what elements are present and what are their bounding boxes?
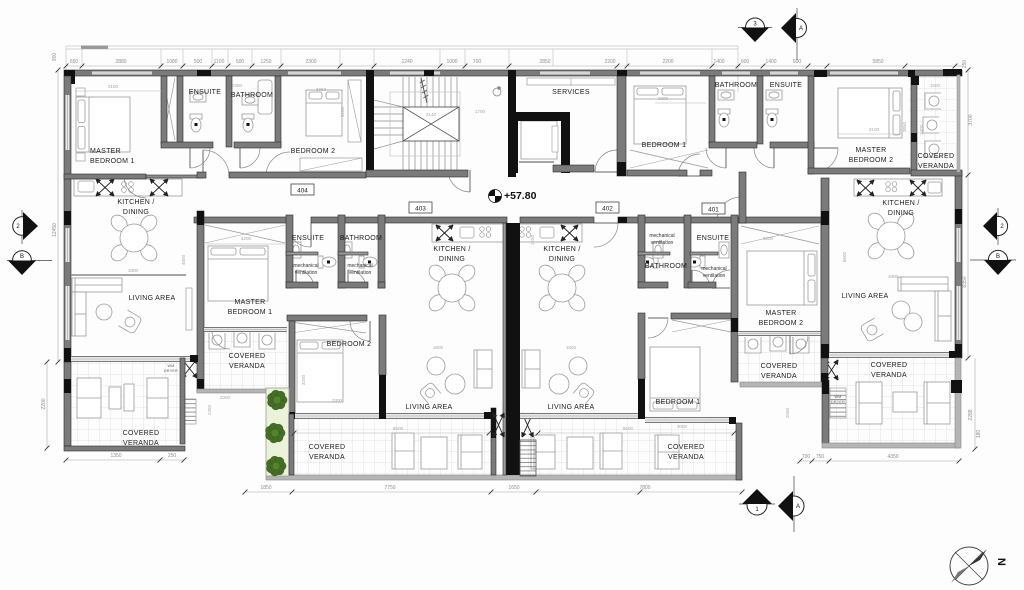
svg-text:2450: 2450 <box>207 404 212 415</box>
svg-text:MASTER: MASTER <box>766 310 797 317</box>
svg-text:3200: 3200 <box>241 236 252 241</box>
svg-text:SERVICES: SERVICES <box>552 89 590 96</box>
svg-text:3100: 3100 <box>108 84 119 89</box>
svg-text:ENSUITE: ENSUITE <box>697 235 729 242</box>
svg-text:DINING: DINING <box>123 209 149 216</box>
svg-text:2200: 2200 <box>604 59 615 65</box>
svg-text:1800: 1800 <box>433 345 444 350</box>
svg-text:7800: 7800 <box>639 485 650 491</box>
svg-text:VERANDA: VERANDA <box>918 163 954 170</box>
svg-text:8350: 8350 <box>962 276 968 287</box>
svg-text:900: 900 <box>52 53 58 62</box>
svg-text:COVERED: COVERED <box>871 362 908 369</box>
svg-text:250: 250 <box>962 60 968 69</box>
svg-text:COVERED: COVERED <box>229 353 266 360</box>
svg-text:BEDROOM 1: BEDROOM 1 <box>228 309 273 316</box>
svg-text:2850: 2850 <box>539 59 550 65</box>
svg-text:3200: 3200 <box>763 236 774 241</box>
svg-text:1500: 1500 <box>930 83 941 88</box>
svg-text:250: 250 <box>168 453 177 459</box>
svg-text:404: 404 <box>297 187 308 194</box>
svg-text:1250: 1250 <box>260 59 271 65</box>
svg-text:MASTER: MASTER <box>856 147 887 154</box>
svg-text:3200: 3200 <box>301 374 306 385</box>
svg-text:750: 750 <box>816 454 825 460</box>
svg-text:4800: 4800 <box>181 254 186 265</box>
svg-text:1850: 1850 <box>260 485 271 491</box>
svg-text:1350: 1350 <box>110 453 121 459</box>
svg-text:BATHROOM: BATHROOM <box>715 82 757 89</box>
svg-text:LIVING AREA: LIVING AREA <box>548 404 595 411</box>
svg-text:1080: 1080 <box>166 59 177 65</box>
svg-text:N: N <box>995 558 1007 566</box>
svg-text:COVERED: COVERED <box>918 153 955 160</box>
svg-text:3000: 3000 <box>677 424 688 429</box>
svg-text:3350: 3350 <box>316 87 327 92</box>
svg-text:500: 500 <box>236 59 245 65</box>
svg-text:DINING: DINING <box>888 210 914 217</box>
svg-text:BEDROOM 2: BEDROOM 2 <box>291 148 336 155</box>
svg-text:180: 180 <box>976 430 982 439</box>
svg-text:B: B <box>996 254 1000 260</box>
svg-text:mechanical: mechanical <box>701 266 726 272</box>
svg-text:ENSUITE: ENSUITE <box>770 82 802 89</box>
svg-text:mechanical: mechanical <box>347 263 372 269</box>
svg-text:2350: 2350 <box>232 83 243 88</box>
svg-text:1400: 1400 <box>713 59 724 65</box>
svg-text:2200: 2200 <box>662 59 673 65</box>
svg-text:2300: 2300 <box>305 59 316 65</box>
svg-text:BATHROOM: BATHROOM <box>231 92 273 99</box>
svg-text:VERANDA: VERANDA <box>309 454 345 461</box>
svg-text:1700: 1700 <box>475 109 486 114</box>
svg-text:+57.80: +57.80 <box>504 190 537 202</box>
svg-text:2880: 2880 <box>115 59 126 65</box>
svg-text:BEDROOM 2: BEDROOM 2 <box>849 157 894 164</box>
svg-text:1400: 1400 <box>919 124 924 135</box>
svg-text:MASTER: MASTER <box>90 148 121 155</box>
svg-text:5850: 5850 <box>872 59 883 65</box>
svg-text:WM: WM <box>835 395 842 399</box>
svg-text:BEDROOM 1: BEDROOM 1 <box>642 142 687 149</box>
svg-text:3280: 3280 <box>340 106 345 117</box>
svg-text:3850: 3850 <box>902 121 907 132</box>
svg-text:401: 401 <box>708 206 719 213</box>
svg-text:1240: 1240 <box>401 59 412 65</box>
svg-text:2288: 2288 <box>968 409 974 420</box>
svg-text:VERANDA: VERANDA <box>229 363 265 370</box>
svg-text:LIVING AREA: LIVING AREA <box>406 404 453 411</box>
svg-text:ventilation: ventilation <box>295 270 318 276</box>
svg-text:ENSUITE: ENSUITE <box>189 89 221 96</box>
svg-text:12450: 12450 <box>52 223 58 237</box>
svg-text:KITCHEN /: KITCHEN / <box>543 246 580 253</box>
svg-text:BATHROOM: BATHROOM <box>645 263 687 270</box>
svg-text:403: 403 <box>415 205 426 212</box>
svg-text:ventilation: ventilation <box>349 270 372 276</box>
svg-text:ENSUITE: ENSUITE <box>292 235 324 242</box>
svg-text:KITCHEN /: KITCHEN / <box>433 246 470 253</box>
svg-text:3100: 3100 <box>869 127 880 132</box>
svg-text:A: A <box>796 504 800 510</box>
svg-text:COVERED: COVERED <box>668 444 705 451</box>
svg-text:700: 700 <box>802 454 811 460</box>
svg-text:COVERED: COVERED <box>761 363 798 370</box>
svg-text:2140: 2140 <box>426 112 437 117</box>
svg-text:BEDROOM 1: BEDROOM 1 <box>656 399 701 406</box>
svg-text:COVERED: COVERED <box>309 444 346 451</box>
svg-text:1100: 1100 <box>214 59 225 65</box>
svg-text:2550: 2550 <box>785 407 790 418</box>
svg-text:1800: 1800 <box>888 274 899 279</box>
svg-text:COVERED: COVERED <box>123 430 160 437</box>
svg-text:DINING: DINING <box>549 256 575 263</box>
svg-text:VERANDA: VERANDA <box>123 440 159 447</box>
svg-text:8600: 8600 <box>623 426 634 431</box>
svg-text:A: A <box>799 26 803 32</box>
svg-text:WM: WM <box>168 364 175 368</box>
svg-text:VERANDA: VERANDA <box>871 372 907 379</box>
svg-text:BEDROOM 2: BEDROOM 2 <box>759 320 804 327</box>
svg-text:6600: 6600 <box>842 251 847 262</box>
svg-text:2200: 2200 <box>41 398 47 409</box>
svg-text:KITCHEN /: KITCHEN / <box>882 200 919 207</box>
svg-text:3300: 3300 <box>658 96 669 101</box>
svg-text:402: 402 <box>602 205 613 212</box>
svg-text:2300: 2300 <box>220 395 231 400</box>
svg-text:BEDROOM 2: BEDROOM 2 <box>327 341 372 348</box>
svg-text:600: 600 <box>741 59 750 65</box>
svg-text:650: 650 <box>70 59 79 65</box>
svg-text:4350: 4350 <box>887 454 898 460</box>
svg-text:LIVING AREA: LIVING AREA <box>129 295 176 302</box>
svg-text:7750: 7750 <box>384 485 395 491</box>
svg-text:1400: 1400 <box>765 59 776 65</box>
svg-text:ventilation: ventilation <box>651 240 674 246</box>
svg-text:1800: 1800 <box>128 268 139 273</box>
svg-text:3300: 3300 <box>332 398 343 403</box>
svg-text:MASTER: MASTER <box>235 299 266 306</box>
svg-text:B: B <box>20 254 24 260</box>
svg-text:LIVING AREA: LIVING AREA <box>842 293 889 300</box>
svg-text:1800: 1800 <box>566 345 577 350</box>
svg-text:DRYER: DRYER <box>831 400 845 404</box>
svg-text:DRYER: DRYER <box>164 369 178 373</box>
svg-text:8600: 8600 <box>393 426 404 431</box>
svg-text:VERANDA: VERANDA <box>668 454 704 461</box>
svg-text:mechanical: mechanical <box>649 233 674 239</box>
svg-text:DINING: DINING <box>439 256 465 263</box>
svg-text:3700: 3700 <box>968 114 974 125</box>
svg-text:500: 500 <box>194 59 203 65</box>
svg-text:700: 700 <box>473 59 482 65</box>
svg-text:1250: 1250 <box>530 234 535 245</box>
svg-text:BATHROOM: BATHROOM <box>340 235 382 242</box>
svg-text:ventilation: ventilation <box>703 273 726 279</box>
svg-text:1000: 1000 <box>446 59 457 65</box>
svg-text:VERANDA: VERANDA <box>761 373 797 380</box>
svg-text:KITCHEN /: KITCHEN / <box>117 199 154 206</box>
svg-text:BEDROOM 1: BEDROOM 1 <box>90 158 135 165</box>
svg-text:mechanical: mechanical <box>293 263 318 269</box>
svg-text:1650: 1650 <box>508 485 519 491</box>
